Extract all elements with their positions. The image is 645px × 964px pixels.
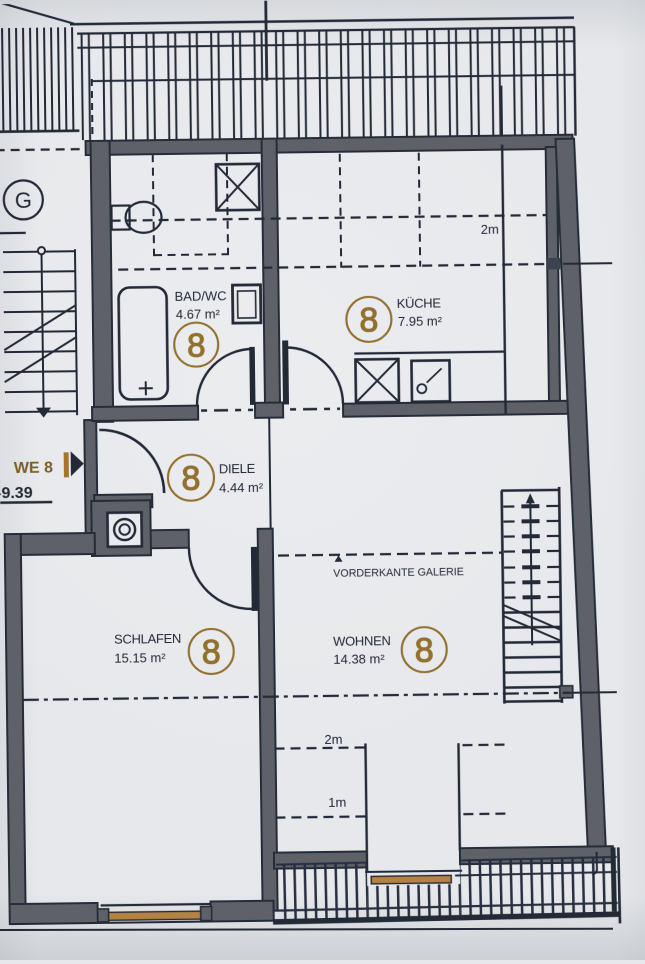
svg-text:4.67 m²: 4.67 m² — [176, 306, 221, 322]
svg-text:14.38 m²: 14.38 m² — [333, 651, 385, 667]
svg-text:G: G — [15, 188, 32, 213]
svg-text:KÜCHE: KÜCHE — [397, 295, 442, 311]
svg-text:WE 8: WE 8 — [14, 460, 53, 478]
svg-text:8: 8 — [359, 301, 378, 339]
svg-text:4.44 m²: 4.44 m² — [219, 480, 264, 496]
svg-text:8: 8 — [187, 327, 206, 364]
svg-text:-9.39: -9.39 — [0, 485, 33, 502]
svg-text:15.15 m²: 15.15 m² — [114, 650, 166, 666]
svg-text:8: 8 — [181, 460, 200, 498]
svg-text:2m: 2m — [324, 732, 342, 747]
svg-text:SCHLAFEN: SCHLAFEN — [114, 631, 181, 647]
svg-text:DIELE: DIELE — [219, 461, 256, 476]
svg-text:VORDERKANTE GALERIE: VORDERKANTE GALERIE — [333, 566, 464, 580]
svg-text:8: 8 — [202, 633, 221, 671]
svg-text:2m: 2m — [481, 222, 499, 237]
svg-text:BAD/WC: BAD/WC — [174, 288, 226, 304]
svg-text:1m: 1m — [328, 795, 346, 810]
svg-text:WOHNEN: WOHNEN — [333, 633, 391, 649]
svg-text:8: 8 — [415, 632, 434, 670]
svg-text:7.95 m²: 7.95 m² — [398, 313, 443, 329]
